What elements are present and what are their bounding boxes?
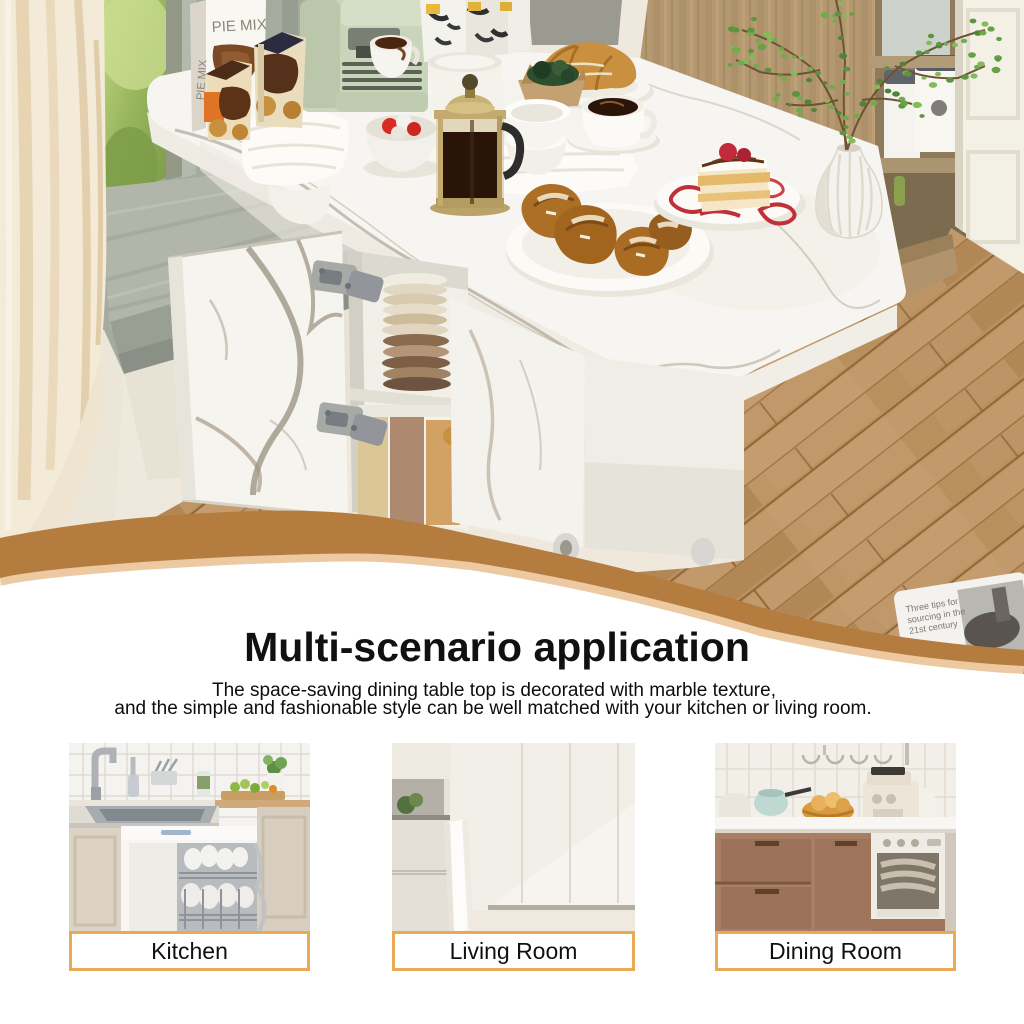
svg-text:PIE MIX: PIE MIX <box>211 16 267 36</box>
